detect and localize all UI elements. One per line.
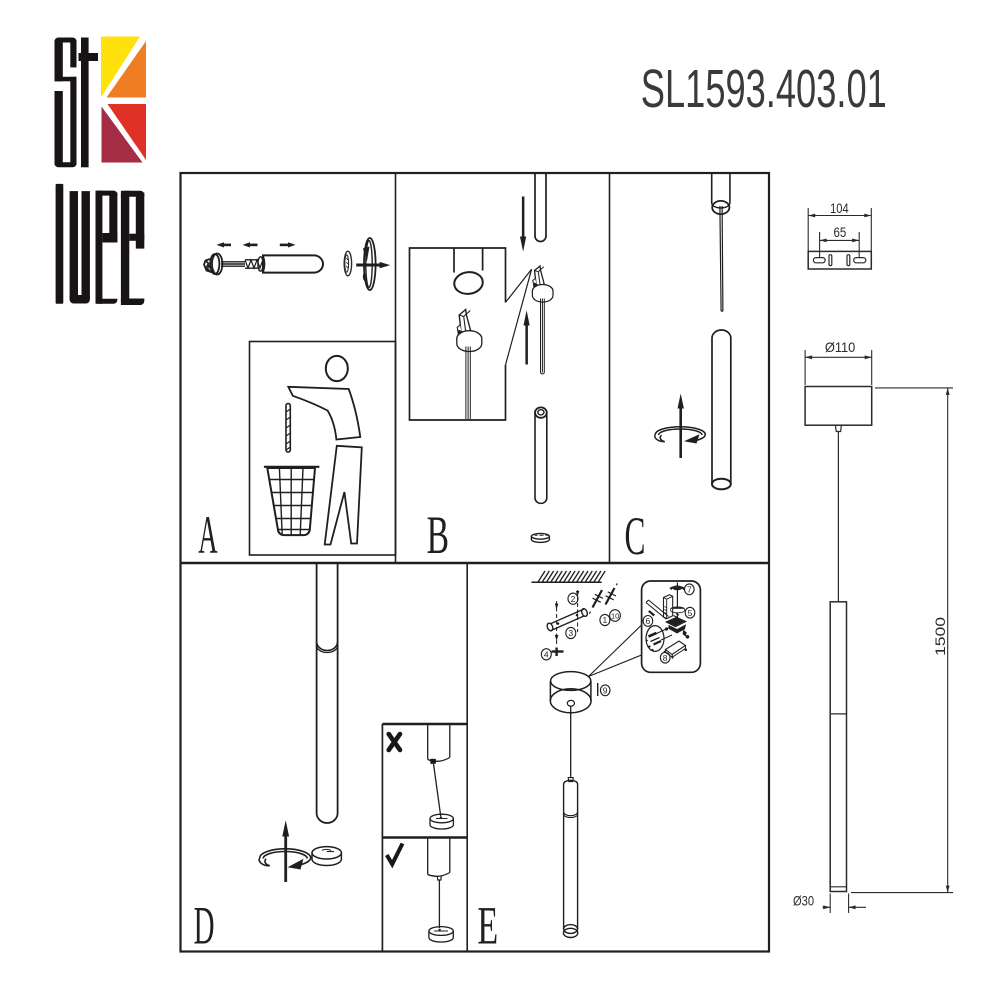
svg-text:C: C: [625, 505, 646, 566]
svg-text:6: 6: [646, 616, 651, 626]
svg-text:SL1593.403.01: SL1593.403.01: [641, 60, 887, 119]
svg-text:9: 9: [603, 685, 608, 695]
svg-text:10: 10: [611, 611, 619, 620]
svg-text:D: D: [194, 895, 215, 956]
svg-text:7: 7: [687, 584, 692, 594]
svg-text:A: A: [198, 504, 217, 565]
svg-text:104: 104: [830, 200, 849, 216]
svg-text:B: B: [427, 504, 449, 565]
svg-text:8: 8: [663, 653, 668, 663]
svg-text:1: 1: [603, 615, 608, 625]
svg-text:1500: 1500: [933, 617, 948, 656]
svg-text:Ø30: Ø30: [793, 892, 814, 908]
svg-text:5: 5: [688, 608, 693, 618]
svg-text:3: 3: [568, 628, 573, 638]
svg-text:2: 2: [571, 594, 576, 604]
svg-text:Ø110: Ø110: [825, 339, 856, 355]
svg-text:E: E: [477, 895, 498, 956]
svg-text:4: 4: [544, 649, 549, 659]
svg-text:65: 65: [834, 224, 847, 240]
